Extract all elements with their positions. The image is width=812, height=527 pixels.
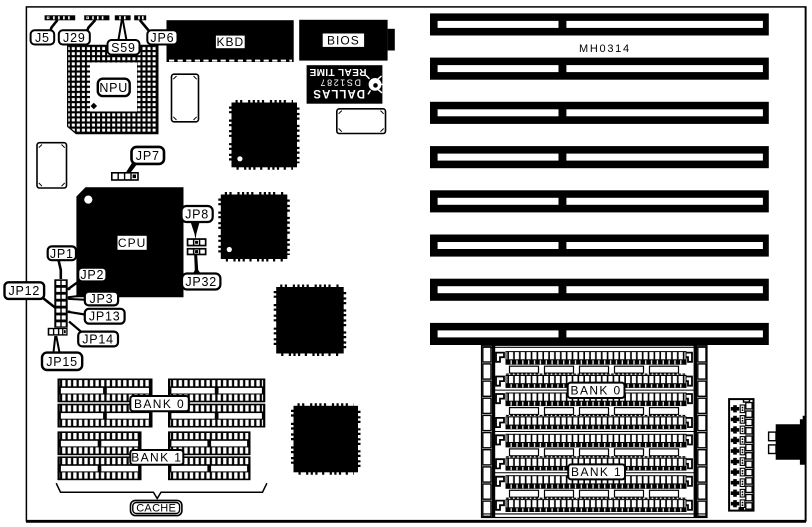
- svg-text:REAL TIME: REAL TIME: [309, 66, 366, 77]
- svg-text:DALLAS: DALLAS: [312, 87, 365, 99]
- svg-text:JP2: JP2: [80, 268, 104, 282]
- svg-text:S59: S59: [111, 41, 136, 55]
- svg-text:JP8: JP8: [185, 208, 209, 222]
- svg-text:KBD: KBD: [216, 35, 244, 49]
- svg-text:JP1: JP1: [50, 247, 74, 261]
- svg-text:CACHE: CACHE: [136, 503, 176, 515]
- svg-text:JP14: JP14: [82, 333, 114, 347]
- svg-text:NPU: NPU: [99, 81, 128, 95]
- svg-text:J5: J5: [35, 31, 50, 45]
- svg-text:MH0314: MH0314: [579, 43, 631, 55]
- svg-text:JP3: JP3: [89, 292, 113, 306]
- svg-text:JP15: JP15: [46, 355, 78, 369]
- svg-text:BANK 0: BANK 0: [134, 397, 185, 411]
- svg-text:J29: J29: [63, 31, 86, 45]
- svg-text:BANK 1: BANK 1: [131, 451, 182, 465]
- svg-text:CPU: CPU: [118, 236, 146, 250]
- svg-text:DS1287: DS1287: [319, 77, 361, 87]
- svg-text:JP12: JP12: [8, 284, 40, 298]
- svg-text:BANK 1: BANK 1: [571, 465, 622, 479]
- svg-text:JP13: JP13: [89, 310, 121, 324]
- svg-text:BANK 0: BANK 0: [571, 384, 622, 398]
- svg-text:JP6: JP6: [150, 31, 174, 45]
- svg-text:BIOS: BIOS: [327, 33, 360, 47]
- svg-text:JP7: JP7: [136, 149, 160, 163]
- svg-text:JP32: JP32: [185, 275, 217, 289]
